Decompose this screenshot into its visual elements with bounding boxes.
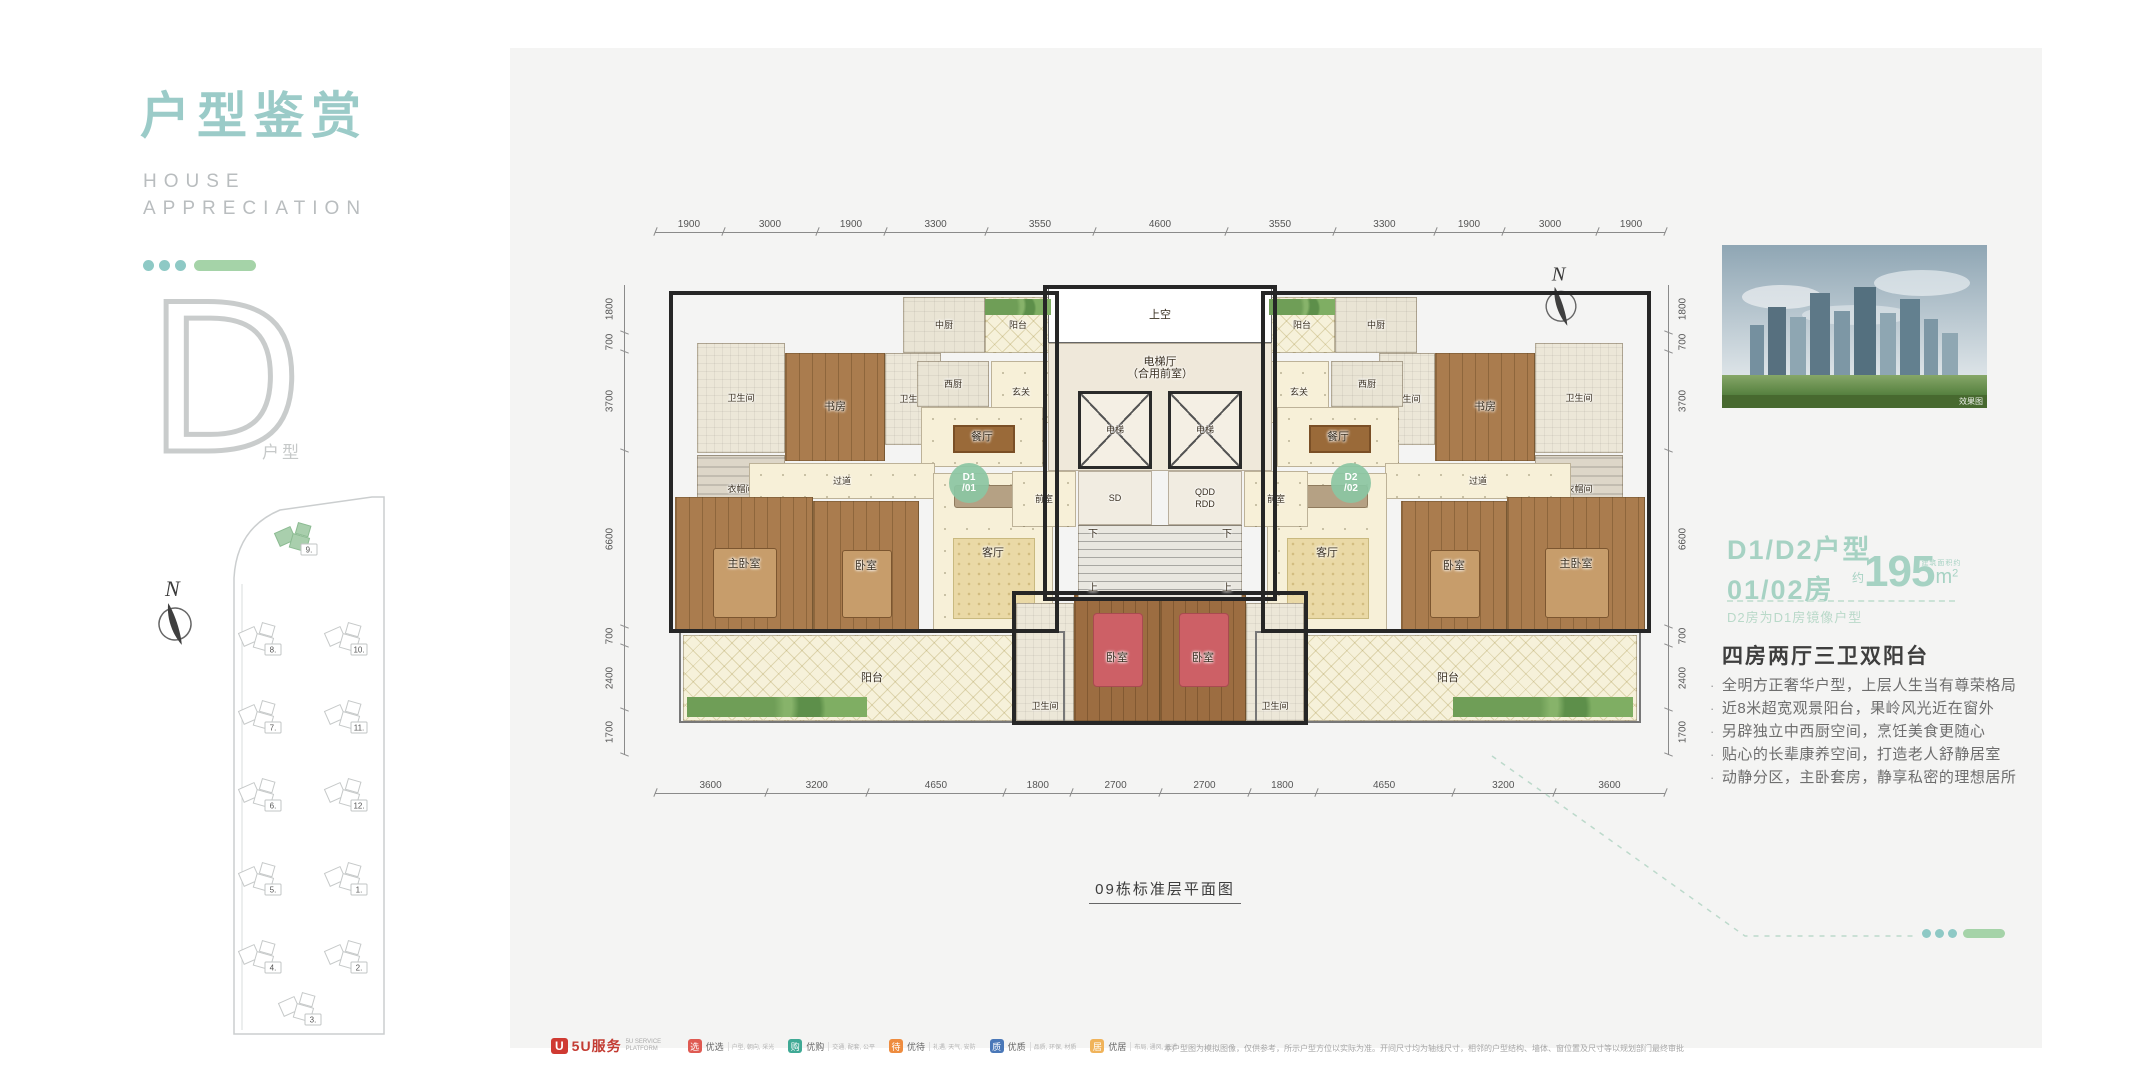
plan-caption: 09栋标准层平面图 <box>1010 878 1320 899</box>
dims-top: 1900300019003300355046003550330019003000… <box>655 210 1665 233</box>
room-dining: 餐厅 <box>921 407 1043 467</box>
svg-text:3.: 3. <box>310 1016 317 1025</box>
dimension-segment: 3300 <box>885 210 986 232</box>
dimension-segment: 1800 <box>1249 771 1316 793</box>
room-service: QDD RDD <box>1168 471 1242 525</box>
svg-text:1.: 1. <box>356 886 363 895</box>
disclaimer: 本户型图为模拟图像，仅供参考，所示户型方位以实际为准。开间尺寸均为轴线尺寸，相邻… <box>1164 1044 1684 1054</box>
svg-text:8.: 8. <box>270 646 277 655</box>
site-building-8: 8. <box>239 623 281 655</box>
svg-text:7.: 7. <box>270 724 277 733</box>
room-plants <box>1453 697 1633 717</box>
badge-icon: 购 <box>788 1039 802 1053</box>
badge-icon: 选 <box>688 1039 702 1053</box>
site-building-6: 6. <box>239 779 281 811</box>
site-building-11: 11. <box>325 701 367 733</box>
footer-badge: 选优选户型, 朝向, 采光 <box>688 1039 775 1053</box>
dimension-segment: 1800 <box>596 285 624 333</box>
area-prefix: 约 <box>1852 569 1864 586</box>
dims-bottom: 3600320046501800270027001800465032003600 <box>655 771 1665 794</box>
feature-item: ·另辟独立中西厨空间，烹饪美食更随心 <box>1710 720 2016 743</box>
feature-list: ·全明方正奢华户型，上层人生当有尊荣格局·近8米超宽观景阳台，果岭风光近在窗外·… <box>1710 674 2016 789</box>
dimension-segment: 3600 <box>1554 771 1665 793</box>
dimension-segment: 2700 <box>1160 771 1249 793</box>
plan-caption-text: 09栋标准层平面图 <box>1089 881 1241 904</box>
room-plants <box>985 299 1051 315</box>
room-study: 书房 <box>785 353 885 461</box>
dimension-segment: 3550 <box>1226 210 1333 232</box>
room-bedroom-s: 卧室 <box>1160 595 1246 721</box>
badge-icon: 质 <box>990 1039 1004 1053</box>
footer-badge: 待优待礼遇, 天气, 安防 <box>889 1039 976 1053</box>
footer-badge: 质优质品质, 环保, 材质 <box>990 1039 1077 1053</box>
feature-item: ·动静分区，主卧套房，静享私密的理想居所 <box>1710 766 2016 789</box>
dimension-segment: 3600 <box>655 771 766 793</box>
dimension-segment: 1900 <box>655 210 723 232</box>
room-bath: 卫生间 <box>1246 603 1304 721</box>
room-text: 下 <box>1216 527 1238 543</box>
dimension-segment: 3700 <box>1669 352 1697 451</box>
svg-text:6.: 6. <box>270 802 277 811</box>
room-master: 主卧室 <box>1507 497 1645 631</box>
motif-bar <box>1963 929 2005 938</box>
sitemap: 9.8.7.6.5.4.10.11.12.1.2.3. <box>222 492 397 1044</box>
unit-title: D1/D2户型 01/02房 <box>1727 530 1872 610</box>
feature-item: ·全明方正奢华户型，上层人生当有尊荣格局 <box>1710 674 2016 697</box>
room-elevator: 电梯 <box>1168 391 1242 469</box>
site-building-5: 5. <box>239 863 281 895</box>
dimension-segment: 700 <box>1669 627 1697 646</box>
badge-icon: 待 <box>889 1039 903 1053</box>
subtitle-line-1: HOUSE <box>143 168 367 195</box>
room-dining: 餐厅 <box>1277 407 1399 467</box>
dimension-segment: 3000 <box>1503 210 1597 232</box>
room-badge: D2 /02 <box>1331 463 1371 503</box>
logo-text: 5U服务 <box>572 1036 622 1056</box>
dimension-segment: 2700 <box>1071 771 1160 793</box>
dimension-segment: 1900 <box>817 210 885 232</box>
dims-right: 18007003700660070024001700 <box>1668 285 1697 755</box>
room-study: 书房 <box>1435 353 1535 461</box>
page-subtitle: HOUSE APPRECIATION <box>143 168 367 222</box>
compass-n-label: N <box>164 576 181 601</box>
dimension-segment: 1900 <box>1435 210 1503 232</box>
room-plants <box>687 697 867 717</box>
logo-mark: U <box>551 1038 568 1054</box>
area-value: 195 <box>1864 550 1934 594</box>
room-bath: 卫生间 <box>1016 603 1074 721</box>
unit-title-line2: 01/02房 <box>1727 570 1872 610</box>
subtitle-line-2: APPRECIATION <box>143 195 367 222</box>
dimension-segment: 2400 <box>596 646 624 710</box>
site-building-7: 7. <box>239 701 281 733</box>
svg-text:5.: 5. <box>270 886 277 895</box>
dimension-segment: 3300 <box>1334 210 1435 232</box>
motif-dot <box>1948 929 1957 938</box>
page-title: 户型鉴赏 <box>140 76 368 148</box>
dimension-segment: 3200 <box>766 771 867 793</box>
unit-letter-label: 户型 <box>262 438 302 463</box>
dimension-segment: 4650 <box>1316 771 1453 793</box>
compass-n-label: N <box>1551 263 1567 285</box>
sitemap-buildings: 9.8.7.6.5.4.10.11.12.1.2.3. <box>239 523 367 1025</box>
dimension-segment: 6600 <box>596 451 624 627</box>
area-sup: 2 <box>1952 568 1958 580</box>
area-note: 建筑面积约 <box>1921 558 1961 568</box>
dimension-segment: 3700 <box>596 352 624 451</box>
motif-dot <box>1922 929 1931 938</box>
compass-sidebar: N <box>145 572 205 656</box>
dimension-segment: 3200 <box>1453 771 1554 793</box>
floor-plan: 阳台阳台卫生间书房卫生间中厨阳台西厨玄关餐厅衣帽间过道主卧室卧室客厅D1 /01… <box>655 285 1665 755</box>
dimension-segment: 1900 <box>1597 210 1665 232</box>
svg-text:11.: 11. <box>354 724 365 733</box>
page: { "colors":{"accent_teal":"#9bcbc8","acc… <box>0 0 2134 1080</box>
room-kitchen: 中厨 <box>1335 297 1417 353</box>
site-building-4: 4. <box>239 941 281 973</box>
unit-area: 约 195 建筑面积约 m2 <box>1852 550 1958 594</box>
room-kitchen: 中厨 <box>903 297 985 353</box>
rendering-photo: 效果图 <box>1722 245 1987 408</box>
site-building-1: 1. <box>325 863 367 895</box>
room-text: 上 <box>1082 581 1104 597</box>
dimension-segment: 2400 <box>1669 646 1697 710</box>
room-kitchen: 西厨 <box>917 361 989 407</box>
svg-text:2.: 2. <box>356 964 363 973</box>
dimension-segment: 700 <box>596 627 624 646</box>
room-bedroom-s: 卧室 <box>1074 595 1160 721</box>
area-unit-wrap: 建筑面积约 m2 <box>1935 566 1958 589</box>
footer-badges: 选优选户型, 朝向, 采光购优购交通, 配套, 公平待优待礼遇, 天气, 安防质… <box>688 1039 1177 1053</box>
feature-item: ·近8米超宽观景阳台，果岭风光近在窗外 <box>1710 697 2016 720</box>
feature-item: ·贴心的长辈康养空间，打造老人舒静居室 <box>1710 743 2016 766</box>
svg-text:9.: 9. <box>306 546 313 555</box>
room-lobby: 前室 <box>1244 471 1308 527</box>
dimension-segment: 700 <box>1669 333 1697 352</box>
dimension-segment: 4650 <box>867 771 1004 793</box>
room-elevator: 电梯 <box>1078 391 1152 469</box>
dimension-segment: 3550 <box>986 210 1093 232</box>
bed-red <box>1093 613 1142 687</box>
badge-icon: 居 <box>1090 1039 1104 1053</box>
logo-subtext: 5U SERVICE PLATFORM <box>626 1039 672 1053</box>
bed-red <box>1179 613 1228 687</box>
room-corridor: 过道 <box>749 463 935 499</box>
footer-logo: U 5U服务 5U SERVICE PLATFORM <box>551 1036 672 1056</box>
divider-dashed <box>1727 600 1955 602</box>
brand-motif-small <box>1922 929 2005 938</box>
dimension-segment: 1700 <box>1669 710 1697 755</box>
room-bedroom: 卧室 <box>813 501 919 631</box>
room-void: 上空 <box>1048 287 1272 343</box>
dimension-segment: 6600 <box>1669 451 1697 627</box>
compass-needle <box>1541 282 1582 330</box>
room-text: 下 <box>1082 527 1104 543</box>
compass-plan: N <box>1533 258 1589 336</box>
room-corridor: 过道 <box>1385 463 1571 499</box>
room-bath: 卫生间 <box>697 343 785 453</box>
area-unit: m <box>1935 566 1952 588</box>
room-plants <box>1269 299 1335 315</box>
room-bedroom: 卧室 <box>1401 501 1507 631</box>
site-building-3: 3. <box>279 993 321 1025</box>
site-building-9: 9. <box>275 523 317 555</box>
room-service: SD <box>1078 471 1152 525</box>
room-master: 主卧室 <box>675 497 813 631</box>
unit-title-line1: D1/D2户型 <box>1727 530 1872 570</box>
svg-text:10.: 10. <box>353 646 364 655</box>
dimension-segment: 1800 <box>1004 771 1071 793</box>
site-building-12: 12. <box>325 779 367 811</box>
mirror-note: D2房为D1房镜像户型 <box>1727 607 1862 626</box>
svg-text:12.: 12. <box>353 802 364 811</box>
footer: U 5U服务 5U SERVICE PLATFORM 选优选户型, 朝向, 采光… <box>551 1036 1177 1056</box>
dimension-segment: 4600 <box>1094 210 1227 232</box>
room-bath: 卫生间 <box>1535 343 1623 453</box>
dimension-segment: 1800 <box>1669 285 1697 333</box>
footer-badge: 购优购交通, 配套, 公平 <box>788 1039 875 1053</box>
room-kitchen: 西厨 <box>1331 361 1403 407</box>
motif-dot <box>1935 929 1944 938</box>
dims-left: 18007003700660070024001700 <box>596 285 625 755</box>
site-building-2: 2. <box>325 941 367 973</box>
compass-needle <box>153 598 197 650</box>
room-badge: D1 /01 <box>949 463 989 503</box>
svg-text:4.: 4. <box>270 964 277 973</box>
photo-caption: 效果图 <box>1959 396 1983 406</box>
feature-title: 四房两厅三卫双阳台 <box>1722 640 1929 670</box>
dimension-segment: 3000 <box>723 210 817 232</box>
site-building-10: 10. <box>325 623 367 655</box>
dimension-segment: 700 <box>596 333 624 352</box>
dimension-segment: 1700 <box>596 710 624 755</box>
room-text: 上 <box>1216 581 1238 597</box>
room-lobby: 前室 <box>1012 471 1076 527</box>
